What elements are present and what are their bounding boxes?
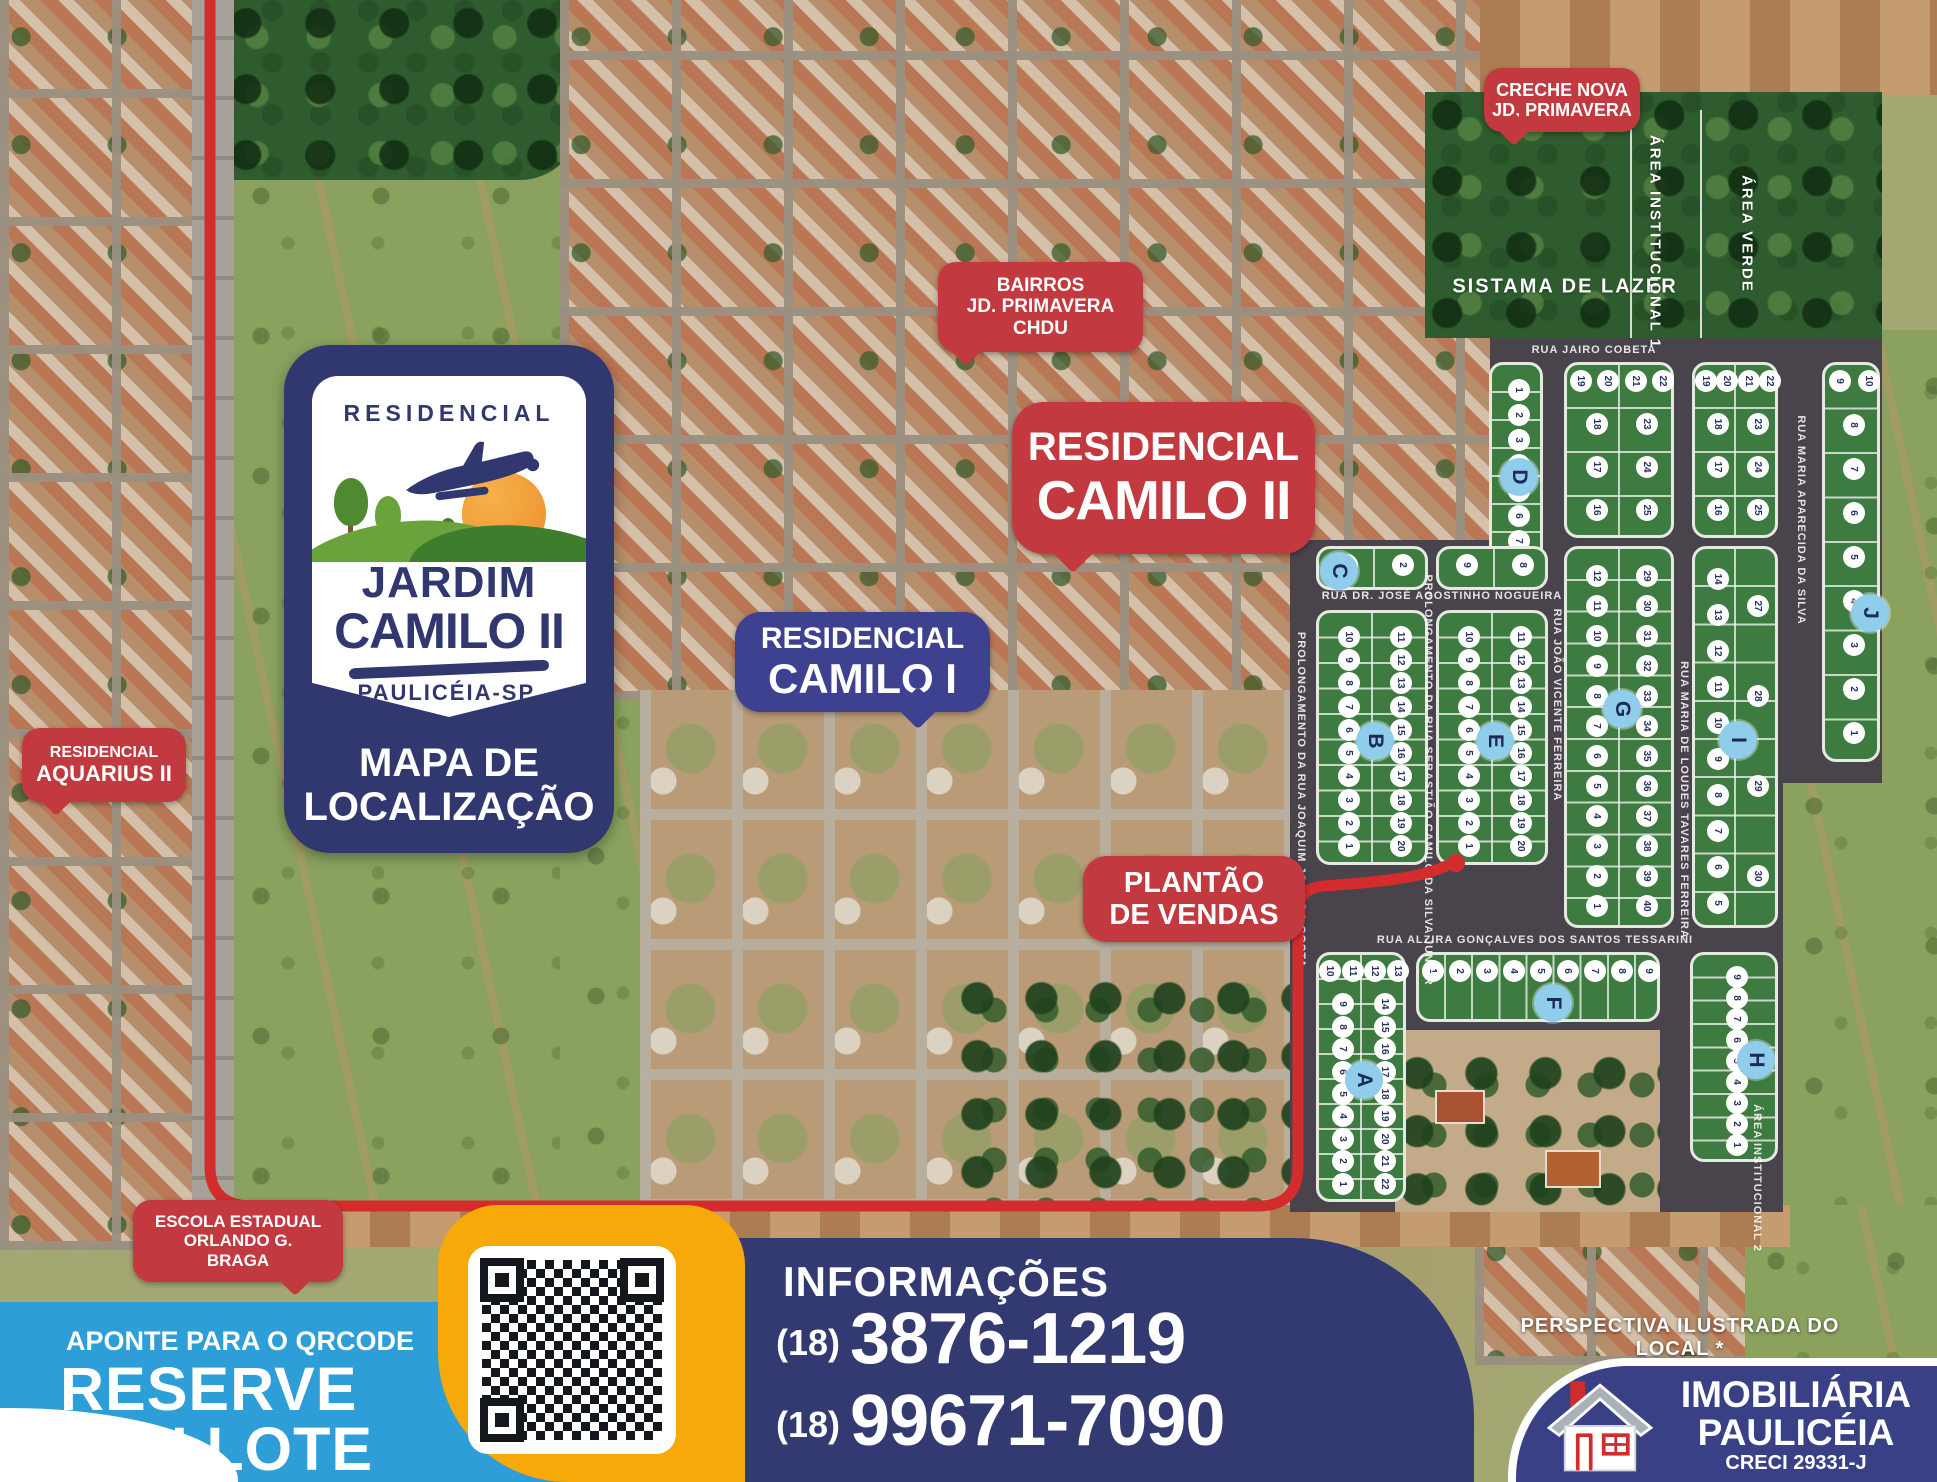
lot-number: 9: [1338, 649, 1360, 671]
lot-number: 18: [1586, 413, 1608, 435]
farm-building: [1545, 1150, 1601, 1188]
badge-plantao-line1: PLANTÃO: [1083, 867, 1305, 899]
block-letter: I: [1719, 721, 1757, 759]
tree-icon: [334, 478, 368, 526]
lot-number: 1: [1458, 835, 1480, 857]
lot-number: 17: [1707, 456, 1729, 478]
realtor-name-line1: IMOBILIÁRIA: [1666, 1376, 1926, 1414]
lot-number: 7: [1726, 1008, 1748, 1030]
block-letter: D: [1500, 458, 1538, 496]
lot-number: 3: [1338, 789, 1360, 811]
lot-number: 10: [1338, 626, 1360, 648]
lot-number: 2: [1843, 678, 1865, 700]
lot-number: 8: [1726, 987, 1748, 1009]
lot-number: 7: [1843, 458, 1865, 480]
lot-number: 6: [1843, 502, 1865, 524]
lot-number: 9: [1586, 655, 1608, 677]
urban-left-strip: [0, 0, 195, 1250]
reserve-line2: SEU LOTE: [60, 1414, 373, 1482]
qr-finder-icon: [480, 1258, 524, 1302]
badge-escola-line1: ESCOLA ESTADUAL: [133, 1212, 343, 1231]
lot-number: 19: [1390, 812, 1412, 834]
map-caption-line2: LOCALIZAÇÃO: [284, 785, 614, 830]
badge-escola-line3: BRAGA: [133, 1251, 343, 1270]
lot-number: 28: [1747, 685, 1769, 707]
lot-number: 13: [1387, 960, 1409, 982]
lot-number: 11: [1342, 960, 1364, 982]
logo-swoosh: [349, 660, 549, 680]
badge-bairros-line1: BAIRROS: [938, 275, 1143, 296]
lot-number: 11: [1707, 676, 1729, 698]
lot-number: 22: [1759, 370, 1781, 392]
qr-finder-icon: [480, 1398, 524, 1442]
lot-number: 20: [1390, 835, 1412, 857]
lot-number: 3: [1726, 1092, 1748, 1114]
badge-camilo2-line2: CAMILO II: [1012, 470, 1315, 532]
lot-number: 3: [1843, 634, 1865, 656]
street-label: RUA MARIA APARECIDA DA SILVA: [1795, 415, 1807, 624]
lot-number: 3: [1586, 835, 1608, 857]
lot-number: 21: [1374, 1150, 1396, 1172]
lot-number: 10: [1319, 960, 1341, 982]
lot-block-I: 14131211109876527282930I: [1692, 546, 1778, 928]
lot-number: 38: [1636, 835, 1658, 857]
lot-block-F: 123456789F: [1416, 952, 1660, 1022]
logo-city: PAULICÉIA-SP.: [312, 680, 586, 706]
lot-number: 7: [1586, 715, 1608, 737]
realtor-name-line2: PAULICÉIA: [1666, 1414, 1926, 1452]
lot-number: 1: [1508, 379, 1530, 401]
lot-number: 2: [1508, 404, 1530, 426]
lot-number: 6: [1707, 856, 1729, 878]
realtor-text: IMOBILIÁRIA PAULICÉIA CRECI 29331-J: [1666, 1376, 1926, 1474]
realtor-creci: CRECI 29331-J: [1666, 1453, 1926, 1473]
lot-number: 5: [1843, 546, 1865, 568]
lot-number: 11: [1390, 626, 1412, 648]
info-bar: INFORMAÇÕES (18) 3876-1219 (18) 99671-70…: [618, 1238, 1474, 1482]
lot-number: 20: [1597, 370, 1619, 392]
poster-canvas: 12345678D1920212218171623242519202122181…: [0, 0, 1937, 1482]
phone1-ddd: (18): [776, 1322, 840, 1372]
lot-number: 3: [1508, 429, 1530, 451]
logo-name-line2: CAMILO II: [312, 602, 586, 660]
lot-number: 18: [1510, 789, 1532, 811]
farm-plot: [1395, 1030, 1660, 1212]
street-label: ÁREA INSTITUCIONAL 2: [1751, 1104, 1763, 1252]
lot-number: 32: [1636, 655, 1658, 677]
lot-number: 10: [1586, 625, 1608, 647]
lot-number: 19: [1695, 370, 1717, 392]
lot-number: 1: [1332, 1173, 1354, 1195]
lot-number: 29: [1747, 775, 1769, 797]
badge-creche-line1: CRECHE NOVA: [1484, 80, 1640, 100]
lot-number: 12: [1510, 649, 1532, 671]
lot-number: 9: [1726, 966, 1748, 988]
lot-number: 36: [1636, 775, 1658, 797]
lot-number: 12: [1707, 640, 1729, 662]
badge-camilo2-line1: RESIDENCIAL: [1012, 425, 1315, 470]
lot-number: 19: [1570, 370, 1592, 392]
street-label: RUA MARIA DE LOUDES TAVARES FERREIRA: [1678, 661, 1690, 939]
lot-number: 13: [1707, 604, 1729, 626]
lot-number: 8: [1843, 414, 1865, 436]
lot-number: 6: [1586, 745, 1608, 767]
lot-number: 24: [1747, 456, 1769, 478]
lot-number: 2: [1332, 1150, 1354, 1172]
phone-row-2: (18) 99671-7090: [776, 1388, 1224, 1454]
lot-block: 19202122181716232425: [1564, 362, 1674, 538]
logo-panel: RESIDENCIAL JARDIM CAMILO II PAULICÉIA: [284, 345, 614, 853]
lot-number: 23: [1636, 413, 1658, 435]
badge-camilo1: RESIDENCIAL CAMILO I: [735, 612, 990, 712]
badge-camilo1-line2: CAMILO I: [735, 655, 990, 702]
orchard-trees: [955, 975, 1305, 1207]
lot-number: 7: [1707, 820, 1729, 842]
lot-number: 14: [1510, 696, 1532, 718]
lot-block-B: 1098765432111121314151617181920B: [1316, 610, 1428, 865]
lot-number: 2: [1586, 865, 1608, 887]
badge-escola-line2: ORLANDO G.: [133, 1231, 343, 1250]
lot-number: 14: [1390, 696, 1412, 718]
lot-block-E: 1098765432111121314151617181920E: [1436, 610, 1548, 865]
lot-number: 13: [1510, 672, 1532, 694]
lot-number: 18: [1390, 789, 1412, 811]
lot-number: 15: [1374, 1016, 1396, 1038]
lot-number: 39: [1636, 865, 1658, 887]
lot-number: 19: [1374, 1105, 1396, 1127]
lot-block-G: 121110987654321293031323334353637383940G: [1564, 546, 1674, 928]
lot-number: 8: [1707, 784, 1729, 806]
badge-bairros: BAIRROS JD. PRIMAVERA CHDU: [938, 262, 1143, 352]
lot-number: 5: [1586, 775, 1608, 797]
lot-number: 7: [1458, 696, 1480, 718]
lot-number: 30: [1636, 595, 1658, 617]
badge-escola: ESCOLA ESTADUAL ORLANDO G. BRAGA: [133, 1200, 343, 1282]
lot-number: 18: [1707, 413, 1729, 435]
lot-number: 19: [1510, 812, 1532, 834]
lot-block-H: 987654321H: [1690, 952, 1778, 1162]
lot-number: 8: [1512, 554, 1534, 576]
lot-number: 2: [1392, 554, 1414, 576]
map-caption-line1: MAPA DE: [284, 741, 614, 786]
badge-aquarius-line2: AQUARIUS II: [22, 762, 186, 787]
realtor-panel: IMOBILIÁRIA PAULICÉIA CRECI 29331-J: [1508, 1358, 1937, 1482]
lot-number: 1: [1726, 1134, 1748, 1156]
block-letter: B: [1356, 722, 1394, 760]
main-road: [192, 0, 234, 1240]
lot-number: 7: [1332, 1038, 1354, 1060]
badge-creche: CRECHE NOVA JD, PRIMAVERA: [1484, 68, 1640, 132]
lot-number: 9: [1458, 649, 1480, 671]
block-letter: F: [1534, 984, 1572, 1022]
lot-number: 5: [1530, 960, 1552, 982]
badge-aquarius: RESIDENCIAL AQUARIUS II: [22, 728, 186, 802]
badge-aquarius-line1: RESIDENCIAL: [22, 744, 186, 762]
lot-number: 14: [1374, 993, 1396, 1015]
block-letter: A: [1345, 1061, 1383, 1099]
lot-number: 1: [1586, 895, 1608, 917]
qr-hint-text: APONTE PARA O QRCODE: [66, 1326, 414, 1357]
lot-number: 14: [1707, 568, 1729, 590]
lot-number: 12: [1390, 649, 1412, 671]
lot-number: 8: [1458, 672, 1480, 694]
lot-number: 16: [1374, 1038, 1396, 1060]
lot-number: 7: [1338, 696, 1360, 718]
farm-building: [1435, 1090, 1485, 1124]
street-label: RUA JOÃO VICENTE FERREIRA: [1551, 609, 1563, 802]
area-divider-line: [1700, 110, 1702, 338]
lot-number: 13: [1390, 672, 1412, 694]
lot-number: 9: [1638, 960, 1660, 982]
logo-art: [312, 434, 586, 562]
lot-number: 4: [1458, 765, 1480, 787]
lot-number: 30: [1747, 865, 1769, 887]
block-letter: C: [1320, 552, 1358, 590]
lot-number: 11: [1586, 595, 1608, 617]
badge-camilo2: RESIDENCIAL CAMILO II: [1012, 402, 1315, 554]
street-label: RUA JAIRO COBETA: [1532, 344, 1657, 356]
lot-number: 1: [1843, 722, 1865, 744]
lot-number: 35: [1636, 745, 1658, 767]
area-divider-line: [1630, 110, 1632, 338]
block-letter: H: [1737, 1041, 1775, 1079]
lot-number: 20: [1716, 370, 1738, 392]
badge-bairros-line2: JD. PRIMAVERA: [938, 296, 1143, 317]
lot-number: 10: [1458, 626, 1480, 648]
lot-number: 20: [1374, 1128, 1396, 1150]
lot-number: 27: [1747, 595, 1769, 617]
lot-number: 8: [1611, 960, 1633, 982]
lot-number: 9: [1332, 993, 1354, 1015]
logo-card: RESIDENCIAL JARDIM CAMILO II PAULICÉIA: [312, 376, 586, 717]
perspective-note: PERSPECTIVA ILUSTRADA DO LOCAL *: [1510, 1315, 1850, 1361]
lot-number: 24: [1636, 456, 1658, 478]
lot-number: 2: [1449, 960, 1471, 982]
lot-number: 17: [1510, 765, 1532, 787]
lot-number: 7: [1584, 960, 1606, 982]
lot-number: 31: [1636, 625, 1658, 647]
block-letter: J: [1851, 594, 1889, 632]
qr-code: [468, 1246, 676, 1454]
lot-number: 21: [1625, 370, 1647, 392]
lot-number: 3: [1458, 789, 1480, 811]
lot-number: 6: [1557, 960, 1579, 982]
street-label: PROLONGAMENTO DA RUA SEBASTIÃO CAMILO DA…: [1422, 574, 1434, 985]
lot-number: 6: [1508, 505, 1530, 527]
lot-number: 4: [1338, 765, 1360, 787]
lot-number: 8: [1338, 672, 1360, 694]
area-label: SISTAMA DE LAZER: [1452, 276, 1677, 299]
lot-number: 9: [1829, 370, 1851, 392]
lot-number: 5: [1707, 892, 1729, 914]
lot-number: 22: [1652, 370, 1674, 392]
lot-block-A: 10111213987654321141516171819202122A: [1316, 952, 1406, 1202]
logo-name-line1: JARDIM: [312, 558, 586, 608]
lot-number: 4: [1332, 1105, 1354, 1127]
lot-number: 40: [1636, 895, 1658, 917]
lot-number: 3: [1332, 1128, 1354, 1150]
area-label: ÁREA VERDE: [1739, 175, 1756, 293]
lot-number: 3: [1476, 960, 1498, 982]
lot-number: 2: [1726, 1113, 1748, 1135]
lot-number: 12: [1364, 960, 1386, 982]
lot-number: 25: [1636, 499, 1658, 521]
lot-number: 9: [1456, 554, 1478, 576]
lot-block: 98: [1436, 546, 1548, 590]
lot-number: 25: [1747, 499, 1769, 521]
lot-number: 16: [1586, 499, 1608, 521]
qr-panel: [438, 1205, 745, 1482]
area-label: ÁREA INSTITUCIONAL 1: [1647, 135, 1664, 349]
lot-number: 29: [1636, 565, 1658, 587]
lot-number: 17: [1586, 456, 1608, 478]
lot-number: 4: [1503, 960, 1525, 982]
lot-number: 2: [1458, 812, 1480, 834]
lot-block: 19202122181716232425: [1692, 362, 1778, 538]
house-icon: [1544, 1374, 1656, 1476]
lot-number: 11: [1510, 626, 1532, 648]
phone2-number: 99671-7090: [850, 1388, 1224, 1454]
lot-number: 21: [1738, 370, 1760, 392]
lot-number: 20: [1510, 835, 1532, 857]
badge-plantao: PLANTÃO DE VENDAS: [1083, 856, 1305, 942]
lot-number: 22: [1374, 1173, 1396, 1195]
lot-number: 1: [1338, 835, 1360, 857]
lot-number: 34: [1636, 715, 1658, 737]
lot-number: 12: [1586, 565, 1608, 587]
phone-row-1: (18) 3876-1219: [776, 1306, 1185, 1372]
lot-number: 4: [1586, 805, 1608, 827]
qr-finder-icon: [620, 1258, 664, 1302]
badge-camilo1-line1: RESIDENCIAL: [735, 622, 990, 656]
lot-block-C: 12C: [1316, 546, 1428, 590]
lot-number: 10: [1858, 370, 1880, 392]
lot-number: 23: [1747, 413, 1769, 435]
phone2-ddd: (18): [776, 1404, 840, 1454]
block-letter: E: [1476, 722, 1514, 760]
logo-kicker: RESIDENCIAL: [312, 400, 586, 427]
lot-number: 37: [1636, 805, 1658, 827]
lot-number: 2: [1338, 812, 1360, 834]
farm-trees: [1395, 1050, 1660, 1212]
phone1-number: 3876-1219: [850, 1306, 1185, 1372]
street-label: RUA DR. JOSÉ AGOSTINHO NOGUEIRA: [1322, 590, 1562, 602]
lot-number: 8: [1332, 1016, 1354, 1038]
badge-plantao-line2: DE VENDAS: [1083, 899, 1305, 931]
lot-number: 16: [1707, 499, 1729, 521]
lot-block-J: 91087654321J: [1822, 362, 1880, 762]
lot-number: 17: [1390, 765, 1412, 787]
